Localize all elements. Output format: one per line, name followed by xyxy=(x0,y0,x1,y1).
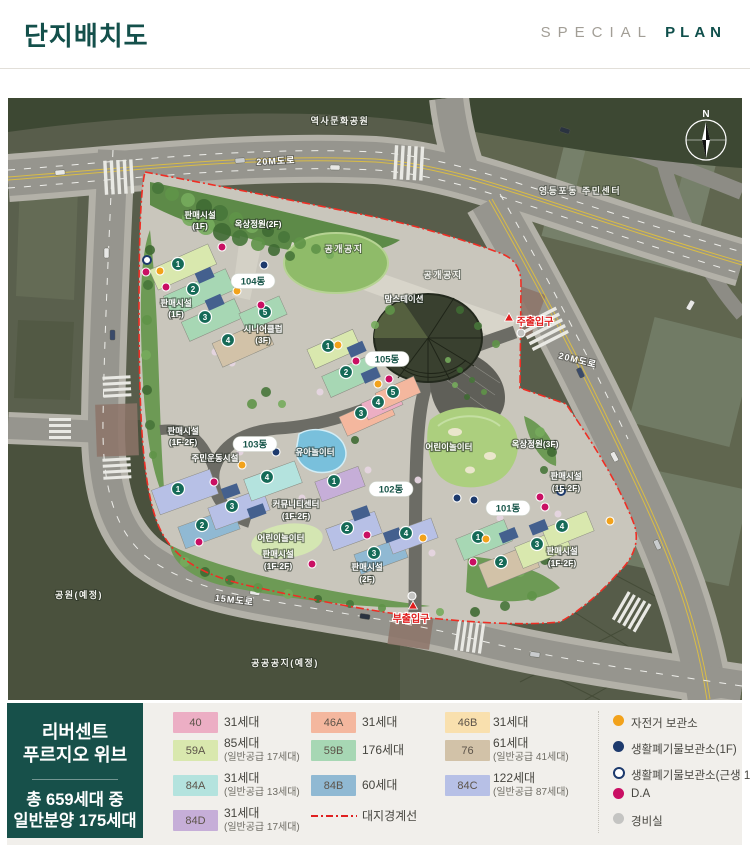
svg-text:2: 2 xyxy=(191,285,196,294)
dong-pill-103: 103동 xyxy=(233,437,277,452)
map-marker-da xyxy=(352,357,360,365)
map-marker-da xyxy=(142,268,150,276)
svg-text:5: 5 xyxy=(263,308,268,317)
label-roof-garden-3f: 옥상정원(3F) xyxy=(512,439,559,449)
label-community-sports: 주민운동시설 xyxy=(192,453,239,463)
dong-pill-101: 101동 xyxy=(486,501,530,516)
svg-text:2: 2 xyxy=(200,521,205,530)
svg-text:2: 2 xyxy=(499,558,504,567)
svg-text:103동: 103동 xyxy=(243,440,268,451)
map-marker-bike xyxy=(238,461,246,469)
map-marker-waste xyxy=(260,261,268,269)
svg-text:3: 3 xyxy=(372,549,377,558)
unit-count-59A: 85세대(일반공급 17세대) xyxy=(224,737,300,764)
svg-text:101동: 101동 xyxy=(496,504,521,515)
svg-text:4: 4 xyxy=(404,529,409,538)
bike-storage-label: 자전거 보관소 xyxy=(631,715,698,731)
svg-text:105동: 105동 xyxy=(375,355,400,366)
unit-swatch-84D: 84D xyxy=(173,810,218,831)
label-park-planned: 공원(예정) xyxy=(55,589,103,600)
waste-storage-retail-icon xyxy=(613,767,625,779)
map-marker-da xyxy=(218,243,226,251)
map-marker-guard xyxy=(517,329,525,337)
unit-count-46A: 31세대 xyxy=(362,716,397,729)
brand-mark: SPECIAL PLAN xyxy=(541,24,726,41)
svg-text:2: 2 xyxy=(345,524,350,533)
guard-post-label: 경비실 xyxy=(631,813,663,829)
map-marker-waste_ring xyxy=(143,256,151,264)
waste-storage-retail-label: 생활폐기물보관소(근생 1F) xyxy=(631,767,750,783)
label-mom-station: 맘스테이션 xyxy=(384,294,423,304)
dong-pill-104: 104동 xyxy=(231,274,275,289)
unit-swatch-40: 40 xyxy=(173,712,218,733)
waste-storage-label: 생활폐기물보관소(1F) xyxy=(631,741,737,757)
project-divider xyxy=(32,779,118,780)
label-kids-play-right: 어린이놀이터 xyxy=(426,442,473,452)
unit-count-46B: 31세대 xyxy=(493,716,528,729)
site-plan-svg: 1 2 3 4 5 1 2 3 4 5 1 2 3 4 1 2 3 4 1 2 … xyxy=(8,98,742,700)
da-label: D.A xyxy=(631,788,650,800)
map-marker-bike xyxy=(374,380,382,388)
project-info-box: 리버센트 푸르지오 위브 총 659세대 중 일반분양 175세대 xyxy=(7,703,143,838)
svg-text:1: 1 xyxy=(176,485,181,494)
map-marker-da xyxy=(162,283,170,291)
page-title: 단지배치도 xyxy=(24,16,149,53)
svg-text:1: 1 xyxy=(176,260,181,269)
unit-swatch-59A: 59A xyxy=(173,740,218,761)
unit-swatch-76: 76 xyxy=(445,740,490,761)
svg-text:부출입구: 부출입구 xyxy=(393,612,430,625)
svg-text:3: 3 xyxy=(359,409,364,418)
svg-text:1: 1 xyxy=(476,533,481,542)
map-marker-bike xyxy=(482,535,490,543)
map-marker-da xyxy=(210,478,218,486)
svg-text:4: 4 xyxy=(226,336,231,345)
unit-swatch-84A: 84A xyxy=(173,775,218,796)
unit-count-40: 31세대 xyxy=(224,716,259,729)
boundary-label: 대지경계선 xyxy=(362,810,417,823)
label-public-site-planned: 공공공지(예정) xyxy=(251,657,319,668)
label-open-space-1: 공개공지 xyxy=(324,243,363,254)
project-name-line1: 리버센트 xyxy=(7,721,143,744)
svg-text:3: 3 xyxy=(203,313,208,322)
map-marker-guard xyxy=(408,592,416,600)
map-marker-da xyxy=(257,301,265,309)
map-marker-bike xyxy=(419,534,427,542)
label-community-center-area: 영등포동 주민센터 xyxy=(539,185,621,196)
unit-count-84A: 31세대(일반공급 13세대) xyxy=(224,772,300,799)
unit-swatch-46B: 46B xyxy=(445,712,490,733)
unit-count-84D: 31세대(일반공급 17세대) xyxy=(224,807,300,834)
unit-count-84C: 122세대(일반공급 87세대) xyxy=(493,772,569,799)
unit-count-76: 61세대(일반공급 41세대) xyxy=(493,737,569,764)
page-header: 단지배치도 SPECIAL PLAN xyxy=(0,0,750,69)
da-icon xyxy=(613,788,624,799)
dong-pill-102: 102동 xyxy=(369,482,413,497)
brand-plan: PLAN xyxy=(665,24,726,41)
svg-text:102동: 102동 xyxy=(379,485,404,496)
project-total-line1: 총 659세대 중 xyxy=(7,790,143,811)
brand-special: SPECIAL xyxy=(541,24,653,41)
map-marker-da xyxy=(385,375,393,383)
unit-count-59B: 176세대 xyxy=(362,744,404,757)
label-kids-play-center: 어린이놀이터 xyxy=(258,533,305,543)
label-roof-garden-2f: 옥상정원(2F) xyxy=(235,219,282,229)
dong-pill-105: 105동 xyxy=(365,352,409,367)
map-marker-bike xyxy=(334,341,342,349)
boundary-dash-sample xyxy=(311,815,357,817)
unit-count-84B: 60세대 xyxy=(362,779,397,792)
project-total-line2: 일반분양 175세대 xyxy=(7,811,143,832)
map-marker-da xyxy=(195,538,203,546)
svg-text:4: 4 xyxy=(376,398,381,407)
map-marker-da xyxy=(536,493,544,501)
site-plan-map: 1 2 3 4 5 1 2 3 4 5 1 2 3 4 1 2 3 4 1 2 … xyxy=(8,98,742,700)
map-marker-da xyxy=(363,531,371,539)
map-marker-da xyxy=(541,503,549,511)
unit-swatch-84B: 84B xyxy=(311,775,356,796)
svg-text:1: 1 xyxy=(326,342,331,351)
svg-text:1: 1 xyxy=(332,477,337,486)
svg-text:2: 2 xyxy=(344,368,349,377)
unit-swatch-59B: 59B xyxy=(311,740,356,761)
label-history-park: 역사문화공원 xyxy=(311,115,370,126)
map-marker-waste xyxy=(470,496,478,504)
map-marker-da xyxy=(308,560,316,568)
map-marker-bike xyxy=(156,267,164,275)
svg-text:주출입구: 주출입구 xyxy=(517,315,554,328)
project-name-line2: 푸르지오 위브 xyxy=(7,744,143,767)
legend-divider xyxy=(598,711,599,833)
legend-panel: 리버센트 푸르지오 위브 총 659세대 중 일반분양 175세대 40 31세… xyxy=(7,703,742,845)
bike-storage-icon xyxy=(613,715,624,726)
unit-swatch-84C: 84C xyxy=(445,775,490,796)
svg-text:5: 5 xyxy=(391,388,396,397)
svg-text:104동: 104동 xyxy=(241,277,266,288)
svg-text:N: N xyxy=(702,109,709,120)
svg-text:4: 4 xyxy=(265,473,270,482)
svg-text:4: 4 xyxy=(560,522,565,531)
label-sales-mid-left: 판매시설(1F·2F) xyxy=(167,426,198,447)
label-road-20m-top: 20M도로 xyxy=(256,155,296,167)
guard-post-icon xyxy=(613,813,624,824)
label-open-space-2: 공개공지 xyxy=(423,269,462,280)
svg-text:3: 3 xyxy=(230,502,235,511)
map-marker-da xyxy=(469,558,477,566)
svg-text:3: 3 xyxy=(535,540,540,549)
map-marker-waste xyxy=(453,494,461,502)
unit-swatch-46A: 46A xyxy=(311,712,356,733)
map-marker-bike xyxy=(606,517,614,525)
label-toddler-play: 유아놀이터 xyxy=(295,447,334,457)
waste-storage-icon xyxy=(613,741,624,752)
